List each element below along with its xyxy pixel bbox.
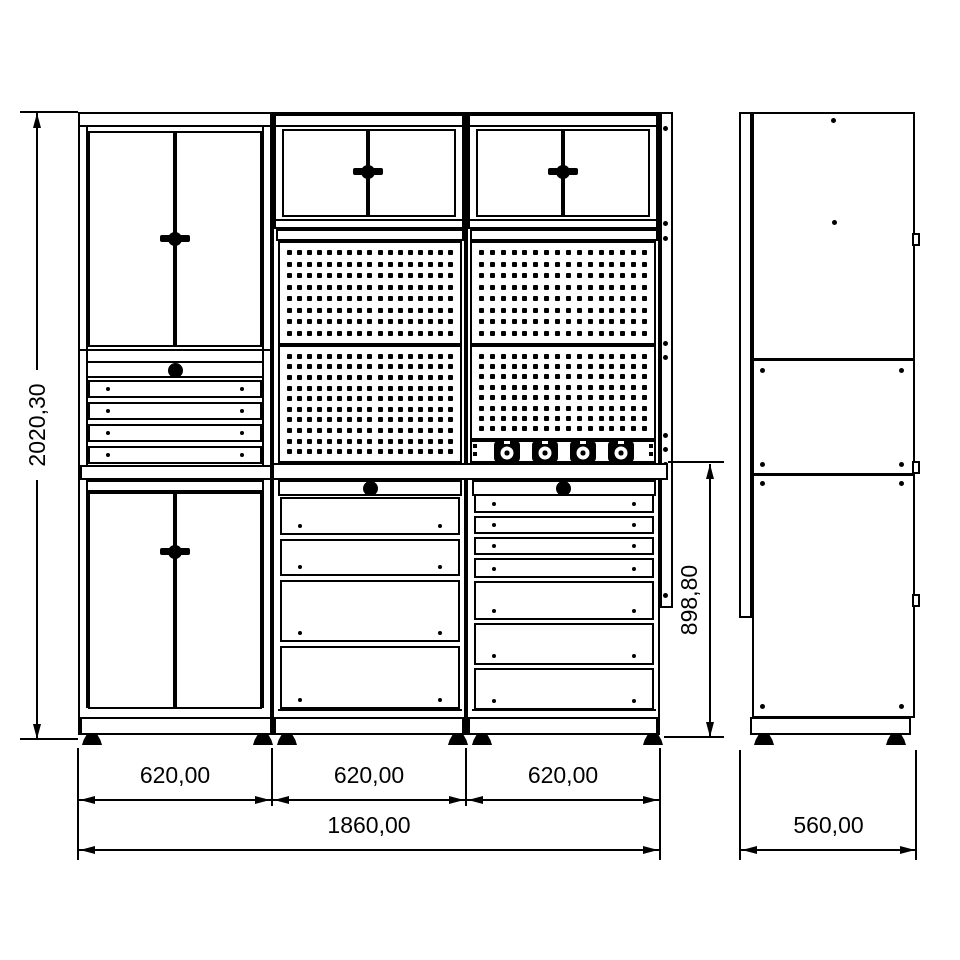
pegboard-hole — [438, 375, 443, 380]
dimension-line-depth — [740, 849, 917, 851]
pegboard-hole — [378, 331, 383, 336]
pegboard-hole — [522, 308, 527, 313]
pegboard-hole — [378, 396, 383, 401]
leveling-foot-icon — [886, 735, 906, 745]
pegboard-hole — [367, 375, 372, 380]
pegboard-hole — [609, 319, 614, 324]
pegboard-hole — [588, 308, 593, 313]
pegboard-hole — [307, 375, 312, 380]
pegboard-hole — [533, 354, 538, 359]
side-rivet-dot — [760, 368, 765, 373]
pegboard-hole — [317, 319, 322, 324]
pegboard-hole — [287, 407, 292, 412]
pegboard-hole — [337, 375, 342, 380]
pegboard-hole — [408, 296, 413, 301]
pegboard-hole — [448, 319, 453, 324]
pegboard-hole — [490, 296, 495, 301]
pegboard-hole — [357, 273, 362, 278]
pegboard-hole — [317, 396, 322, 401]
pegboard-hole — [642, 319, 647, 324]
pegboard-hole — [577, 374, 582, 379]
pegboard-hole — [566, 395, 571, 400]
pegboard-hole — [428, 296, 433, 301]
pegboard-hole — [448, 428, 453, 433]
right-drawer — [474, 537, 654, 555]
pegboard-hole — [287, 250, 292, 255]
pegboard-hole — [448, 285, 453, 290]
dimension-label-module-2: 620,00 — [272, 762, 466, 788]
pegboard-hole — [620, 426, 625, 431]
pegboard-hole — [418, 308, 423, 313]
pegboard-hole — [408, 396, 413, 401]
pegboard-hole — [577, 354, 582, 359]
pegboard-hole — [544, 285, 549, 290]
pegboard-hole — [479, 331, 484, 336]
pegboard-hole — [398, 417, 403, 422]
pegboard-hole — [642, 385, 647, 390]
pegboard-hole — [438, 285, 443, 290]
pegboard-hole — [522, 296, 527, 301]
pegboard-hole — [448, 250, 453, 255]
pegboard-hole — [501, 385, 506, 390]
pegboard-hole — [297, 364, 302, 369]
pegboard-hole — [327, 439, 332, 444]
pegboard-hole — [357, 386, 362, 391]
pegboard-hole — [408, 407, 413, 412]
left-lower-cabinet-door-left — [88, 492, 175, 709]
pegboard-hole — [378, 364, 383, 369]
pegboard-hole — [398, 364, 403, 369]
pegboard-hole — [327, 308, 332, 313]
pegboard-hole — [408, 250, 413, 255]
pegboard-hole — [533, 416, 538, 421]
pegboard-hole — [317, 428, 322, 433]
pegboard-hole — [512, 426, 517, 431]
pegboard-hole — [577, 416, 582, 421]
strip-screw-dot — [473, 452, 477, 456]
side-view-body — [752, 112, 915, 718]
pegboard-hole — [307, 407, 312, 412]
pegboard-hole — [297, 396, 302, 401]
pegboard-hole — [522, 354, 527, 359]
pegboard-hole — [448, 407, 453, 412]
right-wall-cabinet-top-line — [470, 125, 656, 127]
pegboard-hole — [620, 273, 625, 278]
pegboard-hole — [347, 417, 352, 422]
middle-drawer — [280, 646, 460, 709]
pegboard-hole — [642, 308, 647, 313]
pegboard-hole — [490, 262, 495, 267]
pegboard-hole — [327, 428, 332, 433]
pegboard-hole — [642, 426, 647, 431]
pegboard-hole — [428, 407, 433, 412]
pegboard-hole — [428, 319, 433, 324]
dimension-arrow-down — [33, 724, 41, 739]
pegboard-hole — [533, 395, 538, 400]
pegboard-panel-right-top — [470, 241, 656, 345]
extension-line — [739, 750, 741, 860]
pegboard-hole — [287, 417, 292, 422]
pegboard-hole — [566, 250, 571, 255]
pegboard-hole — [297, 386, 302, 391]
pegboard-hole — [544, 296, 549, 301]
pegboard-hole — [544, 319, 549, 324]
pegboard-hole — [501, 319, 506, 324]
pegboard-hole — [307, 364, 312, 369]
pegboard-hole — [438, 262, 443, 267]
pegboard-hole — [367, 319, 372, 324]
pegboard-hole — [555, 395, 560, 400]
pegboard-hole — [577, 331, 582, 336]
pegboard-hole — [287, 273, 292, 278]
pegboard-hole — [631, 395, 636, 400]
pegboard-hole — [522, 319, 527, 324]
pegboard-hole — [620, 262, 625, 267]
right-drawer — [474, 558, 654, 578]
pegboard-hole — [566, 296, 571, 301]
pegboard-hole — [398, 319, 403, 324]
left-base-plinth — [80, 717, 272, 735]
pegboard-hole — [428, 354, 433, 359]
pegboard-hole — [327, 331, 332, 336]
pegboard-hole — [347, 407, 352, 412]
pegboard-hole — [544, 308, 549, 313]
pegboard-hole — [357, 439, 362, 444]
pegboard-hole — [642, 364, 647, 369]
pegboard-hole — [599, 262, 604, 267]
pegboard-hole — [357, 296, 362, 301]
power-socket-icon — [494, 441, 520, 462]
pegboard-hole — [490, 354, 495, 359]
pegboard-hole — [357, 417, 362, 422]
pegboard-hole — [620, 364, 625, 369]
pegboard-hole — [317, 308, 322, 313]
pegboard-hole — [347, 273, 352, 278]
pegboard-hole — [408, 364, 413, 369]
pegboard-hole — [317, 331, 322, 336]
pegboard-hole — [357, 449, 362, 454]
extension-line — [20, 111, 78, 113]
pegboard-hole — [479, 385, 484, 390]
lock-knob-icon — [168, 363, 183, 378]
pegboard-hole — [588, 296, 593, 301]
pegboard-hole — [522, 406, 527, 411]
pegboard-hole — [566, 354, 571, 359]
pegboard-hole — [367, 273, 372, 278]
pegboard-hole — [588, 285, 593, 290]
pegboard-hole — [588, 406, 593, 411]
pegboard-hole — [479, 273, 484, 278]
pegboard-hole — [522, 416, 527, 421]
pegboard-hole — [566, 319, 571, 324]
pegboard-hole — [347, 354, 352, 359]
pegboard-hole — [522, 385, 527, 390]
pegboard-hole — [512, 395, 517, 400]
pegboard-hole — [428, 439, 433, 444]
pegboard-hole — [490, 273, 495, 278]
pegboard-hole — [347, 364, 352, 369]
pegboard-hole — [642, 331, 647, 336]
pegboard-hole — [297, 354, 302, 359]
pegboard-hole — [408, 308, 413, 313]
pegboard-hole — [317, 354, 322, 359]
left-column-separator-line — [80, 349, 270, 351]
pegboard-hole — [501, 416, 506, 421]
side-rivet-dot — [899, 481, 904, 486]
pegboard-hole — [631, 319, 636, 324]
pegboard-hole — [544, 416, 549, 421]
pegboard-hole — [307, 386, 312, 391]
pegboard-hole — [357, 285, 362, 290]
pegboard-hole — [378, 407, 383, 412]
pegboard-hole — [388, 396, 393, 401]
pegboard-hole — [287, 449, 292, 454]
dimension-label-workbench-height: 898,80 — [676, 550, 702, 650]
pegboard-hole — [297, 428, 302, 433]
pegboard-hole — [479, 308, 484, 313]
pegboard-hole — [588, 374, 593, 379]
pegboard-hole — [438, 364, 443, 369]
pegboard-hole — [337, 396, 342, 401]
pegboard-hole — [490, 395, 495, 400]
side-latch-icon — [912, 594, 920, 607]
pegboard-hole — [479, 374, 484, 379]
pegboard-hole — [490, 364, 495, 369]
pegboard-hole — [577, 426, 582, 431]
pegboard-hole — [609, 395, 614, 400]
pegboard-hole — [609, 285, 614, 290]
pegboard-hole — [357, 375, 362, 380]
pegboard-hole — [566, 426, 571, 431]
pegboard-hole — [418, 449, 423, 454]
leveling-foot-icon — [754, 735, 774, 745]
pegboard-hole — [522, 250, 527, 255]
leveling-foot-icon — [82, 735, 102, 745]
pegboard-hole — [438, 449, 443, 454]
pegboard-hole — [577, 308, 582, 313]
pegboard-hole — [337, 354, 342, 359]
side-rivet-dot — [831, 118, 836, 123]
pegboard-hole — [631, 374, 636, 379]
dimension-arrow-down — [706, 722, 714, 737]
pegboard-hole — [448, 273, 453, 278]
pegboard-panel-middle-bottom — [278, 345, 462, 463]
pegboard-hole — [448, 449, 453, 454]
left-drawer — [88, 402, 262, 420]
side-rivet-dot — [760, 481, 765, 486]
pegboard-hole — [490, 285, 495, 290]
pegboard-hole — [367, 428, 372, 433]
pegboard-hole — [287, 364, 292, 369]
pegboard-hole — [512, 296, 517, 301]
pegboard-hole — [418, 250, 423, 255]
pegboard-hole — [428, 308, 433, 313]
pegboard-hole — [317, 407, 322, 412]
pegboard-hole — [428, 375, 433, 380]
pegboard-hole — [522, 395, 527, 400]
pegboard-hole — [357, 364, 362, 369]
left-drawer — [88, 446, 262, 464]
pegboard-hole — [337, 262, 342, 267]
trim-screw-dot — [663, 126, 668, 131]
pegboard-hole — [398, 407, 403, 412]
pegboard-hole — [428, 250, 433, 255]
pegboard-hole — [544, 250, 549, 255]
left-lower-cabinet-top-rail — [86, 480, 264, 492]
pegboard-hole — [490, 426, 495, 431]
pegboard-hole — [337, 250, 342, 255]
pegboard-hole — [642, 273, 647, 278]
pegboard-hole — [307, 439, 312, 444]
pegboard-hole — [501, 406, 506, 411]
pegboard-hole — [599, 250, 604, 255]
workbench-top — [272, 463, 668, 480]
pegboard-hole — [555, 416, 560, 421]
pegboard-hole — [378, 439, 383, 444]
pegboard-hole — [566, 416, 571, 421]
power-socket-icon — [532, 441, 558, 462]
pegboard-hole — [307, 296, 312, 301]
pegboard-hole — [297, 250, 302, 255]
pegboard-hole — [388, 296, 393, 301]
pegboard-hole — [479, 285, 484, 290]
right-hanging-rail — [470, 229, 658, 241]
pegboard-hole — [631, 285, 636, 290]
pegboard-hole — [307, 273, 312, 278]
pegboard-hole — [347, 375, 352, 380]
pegboard-hole — [388, 273, 393, 278]
dimension-arrow-left — [468, 796, 483, 804]
pegboard-hole — [620, 296, 625, 301]
pegboard-hole — [609, 364, 614, 369]
pegboard-hole — [501, 262, 506, 267]
pegboard-hole — [533, 319, 538, 324]
right-base-plinth — [468, 717, 658, 735]
pegboard-hole — [327, 417, 332, 422]
pegboard-hole — [490, 416, 495, 421]
pegboard-hole — [388, 417, 393, 422]
pegboard-hole — [522, 285, 527, 290]
pegboard-hole — [357, 396, 362, 401]
pegboard-hole — [609, 354, 614, 359]
pegboard-hole — [307, 417, 312, 422]
pegboard-hole — [533, 406, 538, 411]
pegboard-hole — [408, 331, 413, 336]
pegboard-hole — [398, 250, 403, 255]
pegboard-hole — [599, 406, 604, 411]
pegboard-hole — [522, 273, 527, 278]
pegboard-hole — [367, 364, 372, 369]
pegboard-hole — [398, 439, 403, 444]
pegboard-hole — [367, 396, 372, 401]
pegboard-hole — [631, 273, 636, 278]
pegboard-hole — [297, 417, 302, 422]
pegboard-hole — [388, 308, 393, 313]
pegboard-hole — [448, 396, 453, 401]
pegboard-hole — [544, 331, 549, 336]
pegboard-hole — [327, 364, 332, 369]
pegboard-hole — [555, 273, 560, 278]
technical-drawing-canvas: 2020,30 620,00 620,00 620,00 1860,00 560… — [0, 0, 960, 960]
pegboard-hole — [512, 385, 517, 390]
pegboard-hole — [555, 285, 560, 290]
pegboard-hole — [287, 396, 292, 401]
pegboard-hole — [479, 395, 484, 400]
pegboard-hole — [337, 386, 342, 391]
pegboard-hole — [448, 262, 453, 267]
pegboard-hole — [317, 262, 322, 267]
pegboard-hole — [438, 428, 443, 433]
pegboard-hole — [512, 406, 517, 411]
pegboard-hole — [555, 319, 560, 324]
pegboard-hole — [337, 364, 342, 369]
door-handle-icon — [353, 167, 383, 176]
middle-base-plinth — [274, 717, 464, 735]
right-side-trim-strip — [660, 112, 673, 608]
pegboard-hole — [327, 354, 332, 359]
pegboard-hole — [357, 250, 362, 255]
pegboard-hole — [631, 364, 636, 369]
pegboard-hole — [479, 296, 484, 301]
pegboard-hole — [620, 354, 625, 359]
pegboard-hole — [501, 308, 506, 313]
pegboard-hole — [367, 296, 372, 301]
pegboard-hole — [357, 354, 362, 359]
pegboard-hole — [577, 319, 582, 324]
pegboard-hole — [588, 416, 593, 421]
side-rivet-dot — [760, 704, 765, 709]
pegboard-hole — [501, 374, 506, 379]
pegboard-hole — [367, 285, 372, 290]
pegboard-hole — [512, 273, 517, 278]
pegboard-hole — [577, 262, 582, 267]
dimension-arrow-left — [274, 796, 289, 804]
pegboard-hole — [418, 319, 423, 324]
pegboard-hole — [631, 296, 636, 301]
pegboard-hole — [378, 308, 383, 313]
pegboard-hole — [327, 375, 332, 380]
pegboard-hole — [287, 296, 292, 301]
pegboard-hole — [347, 250, 352, 255]
pegboard-hole — [620, 406, 625, 411]
pegboard-hole — [287, 375, 292, 380]
pegboard-hole — [418, 364, 423, 369]
dimension-label-overall-height: 2020,30 — [24, 370, 50, 480]
pegboard-hole — [490, 331, 495, 336]
pegboard-hole — [544, 395, 549, 400]
right-drawer — [474, 668, 654, 710]
pegboard-hole — [438, 296, 443, 301]
pegboard-hole — [599, 364, 604, 369]
pegboard-hole — [642, 374, 647, 379]
pegboard-hole — [533, 250, 538, 255]
pegboard-hole — [317, 273, 322, 278]
pegboard-hole — [347, 428, 352, 433]
pegboard-hole — [418, 375, 423, 380]
pegboard-hole — [501, 426, 506, 431]
pegboard-hole — [609, 385, 614, 390]
left-drawer — [88, 380, 262, 398]
pegboard-hole — [317, 364, 322, 369]
pegboard-hole — [297, 262, 302, 267]
pegboard-hole — [388, 250, 393, 255]
pegboard-hole — [522, 426, 527, 431]
pegboard-hole — [438, 417, 443, 422]
pegboard-hole — [609, 250, 614, 255]
pegboard-hole — [347, 449, 352, 454]
pegboard-hole — [297, 439, 302, 444]
middle-wall-cabinet-top-line — [276, 125, 462, 127]
